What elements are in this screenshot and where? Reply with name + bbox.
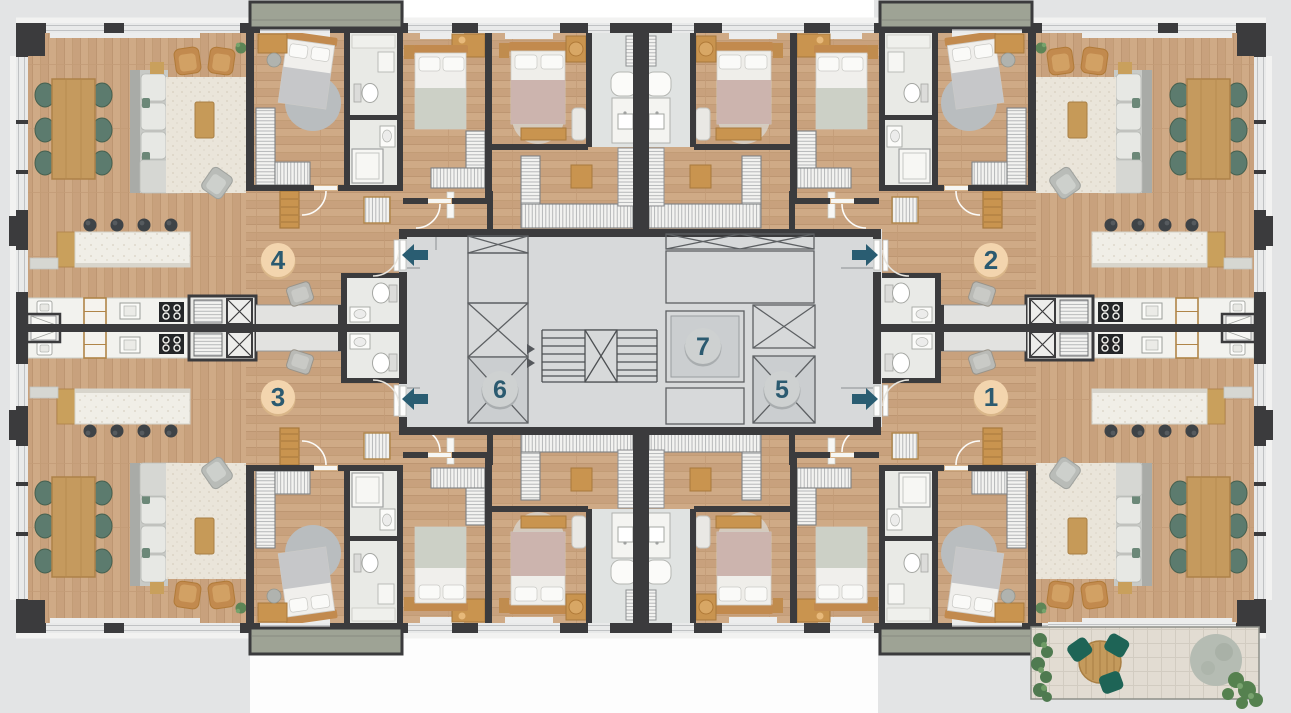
svg-text:7: 7: [696, 333, 710, 361]
svg-text:1: 1: [984, 382, 998, 412]
svg-text:4: 4: [271, 245, 286, 275]
svg-text:5: 5: [775, 376, 789, 404]
svg-text:3: 3: [271, 382, 285, 412]
svg-text:6: 6: [493, 376, 507, 404]
svg-text:2: 2: [984, 245, 998, 275]
